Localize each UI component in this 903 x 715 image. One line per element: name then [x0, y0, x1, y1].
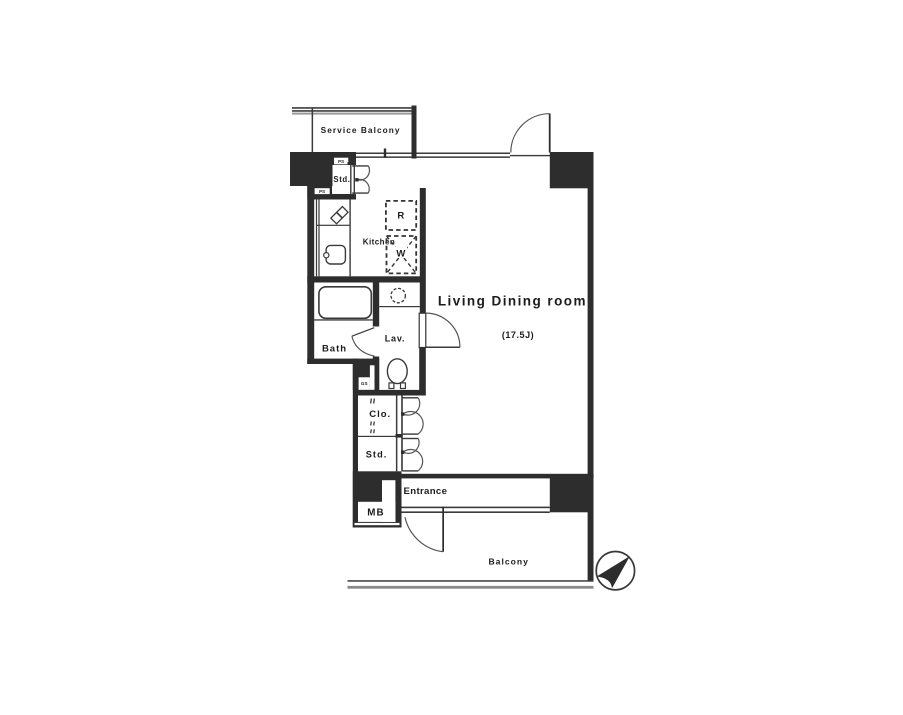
svg-text:PS: PS: [338, 159, 344, 164]
svg-text:Std.: Std.: [366, 450, 388, 460]
svg-text:Entrance: Entrance: [404, 486, 448, 497]
svg-text:Clo.: Clo.: [369, 409, 391, 420]
svg-text:Service Balcony: Service Balcony: [321, 125, 401, 135]
svg-text:Balcony: Balcony: [488, 557, 528, 567]
svg-text:Std.: Std.: [333, 175, 350, 184]
svg-text:Bath: Bath: [322, 343, 347, 354]
svg-text:(17.5J): (17.5J): [502, 330, 534, 340]
svg-text:PS: PS: [319, 189, 325, 194]
svg-text:W: W: [396, 249, 405, 260]
svg-text:MB: MB: [367, 507, 384, 518]
svg-text:GS: GS: [361, 381, 368, 386]
svg-text:Lav.: Lav.: [385, 334, 406, 344]
svg-text:R: R: [397, 211, 404, 222]
svg-text:Living Dining room: Living Dining room: [438, 293, 587, 308]
